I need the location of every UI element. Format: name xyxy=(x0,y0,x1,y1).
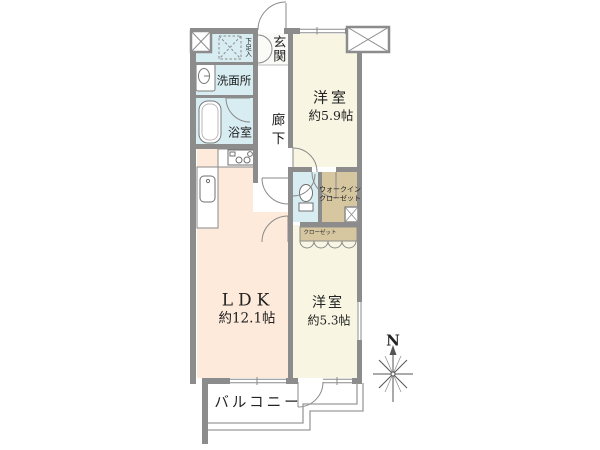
ldk-door xyxy=(262,178,288,204)
wall-genkan-left xyxy=(253,33,258,62)
wall-ldk-bedroom2 xyxy=(288,227,293,378)
wic-label-line2: クローゼット xyxy=(319,194,361,203)
bathtub-icon xyxy=(199,101,221,143)
north-label: N xyxy=(386,333,400,350)
compass-rose-icon xyxy=(373,345,413,402)
wic-label: ウォークイン クローゼット xyxy=(319,185,361,203)
bedroom1-size: 約5.9帖 xyxy=(309,109,354,123)
wall-bedroom1-bottom-a xyxy=(288,167,312,172)
genkan-label: 玄関 xyxy=(270,35,285,63)
pipe-space-icon xyxy=(345,207,358,222)
shoe-box-label: 下足入 xyxy=(243,37,250,57)
ldk-label: LDK xyxy=(222,291,275,310)
entrance-door xyxy=(258,2,286,30)
wall-balcony-left xyxy=(202,378,208,444)
floor-plan-drawing xyxy=(0,0,600,450)
wall-left xyxy=(190,28,196,384)
wall-corridor-left xyxy=(253,62,258,183)
closet-label: クローゼット xyxy=(303,230,336,236)
corridor-label: 廊下 xyxy=(268,113,283,150)
window-bedroom1-top xyxy=(300,27,345,35)
wash-basin-icon xyxy=(196,64,215,91)
wic-label-line1: ウォークイン xyxy=(319,185,361,194)
balcony-label: バルコニー xyxy=(214,395,301,411)
bathroom-label: 浴室 xyxy=(228,126,252,139)
toilet-icon xyxy=(299,185,313,212)
wall-bath-ldk xyxy=(190,144,258,149)
wall-ldk-bottom xyxy=(202,378,230,384)
pillar-top-left-icon xyxy=(191,31,211,52)
ldk-size: 約12.1帖 xyxy=(218,311,275,326)
wall-bedroom1-left xyxy=(288,28,293,148)
floor-plan-image: 玄関 下足入 洗面所 浴室 廊下 洋室 約5.9帖 ウォークイン クローゼット … xyxy=(0,0,600,450)
wall-bottom-center xyxy=(286,378,298,384)
stove-icon xyxy=(228,150,257,165)
pillar-top-right-icon xyxy=(347,27,389,52)
bedroom1-label: 洋室 xyxy=(313,90,349,107)
window-ldk-bottom xyxy=(230,377,286,385)
window-bedroom2-bottom xyxy=(323,377,352,385)
kitchen-sink-icon xyxy=(200,176,215,202)
window-bedroom2-right xyxy=(357,302,362,340)
wall-toilet-left xyxy=(288,172,293,227)
wall-under-laundry xyxy=(196,62,256,65)
washroom-label: 洗面所 xyxy=(217,75,252,88)
bedroom2-label: 洋室 xyxy=(312,296,344,312)
bedroom2-size: 約5.3帖 xyxy=(307,314,350,327)
balcony-door xyxy=(298,382,323,407)
